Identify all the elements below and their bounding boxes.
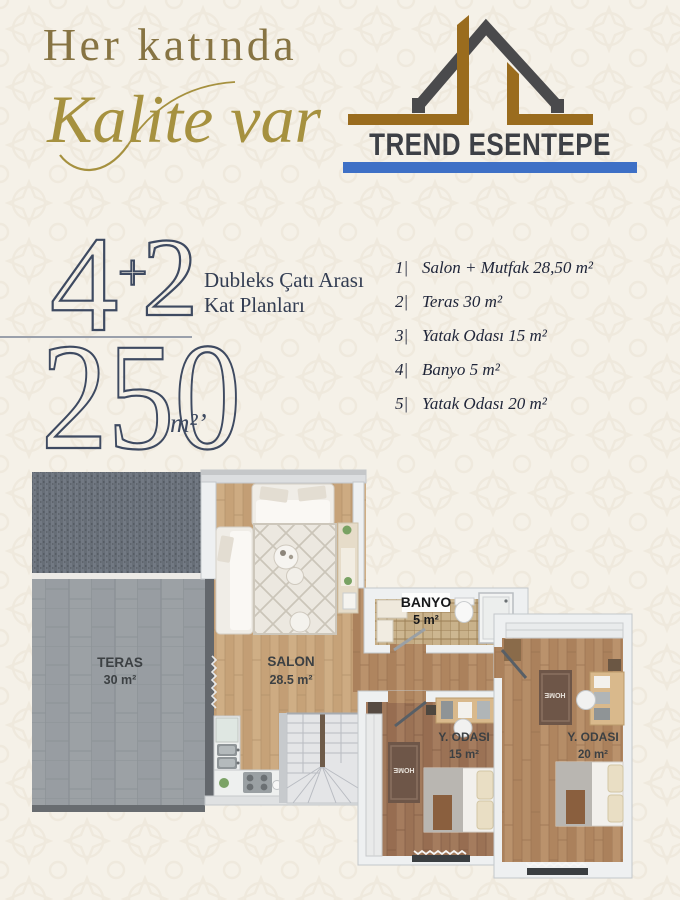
svg-text:BANYO: BANYO [401,594,452,610]
svg-text:m²’: m²’ [170,408,207,438]
svg-text:30 m²: 30 m² [104,673,137,687]
svg-text:HOME: HOME [544,691,565,698]
svg-text:HOME: HOME [393,766,414,773]
svg-text:250: 250 [41,313,241,460]
svg-text:TERAS: TERAS [97,655,143,670]
svg-text:20 m²: 20 m² [578,749,608,761]
svg-text:Y. ODASI: Y. ODASI [567,730,618,744]
svg-text:SALON: SALON [267,654,314,669]
svg-text:15 m²: 15 m² [449,749,479,761]
svg-text:Y. ODASI: Y. ODASI [438,730,489,744]
svg-text:28.5 m²: 28.5 m² [269,673,312,687]
svg-text:5 m²: 5 m² [413,613,439,627]
